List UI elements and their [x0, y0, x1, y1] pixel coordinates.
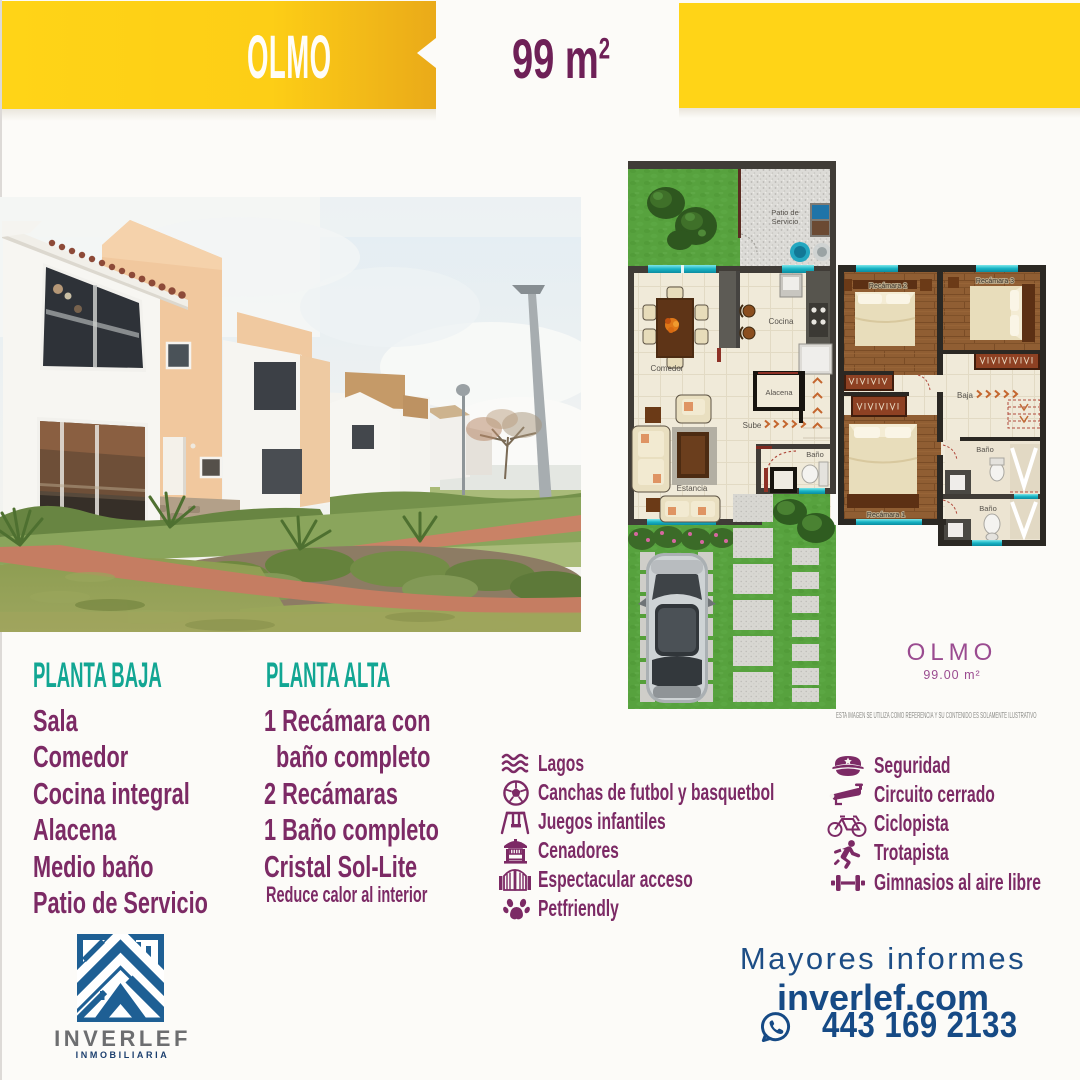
- svg-text:Recámara 1: Recámara 1: [867, 512, 905, 519]
- svg-text:Recámara 2: Recámara 2: [869, 283, 907, 290]
- svg-text:Servicio: Servicio: [772, 217, 799, 226]
- svg-text:Baño: Baño: [806, 450, 824, 459]
- svg-text:Baja: Baja: [957, 391, 974, 400]
- svg-text:Patio de: Patio de: [771, 208, 799, 217]
- svg-text:Recámara 3: Recámara 3: [976, 278, 1014, 285]
- svg-text:Sube: Sube: [743, 421, 762, 430]
- svg-text:Baño: Baño: [979, 504, 997, 513]
- svg-text:Comedor: Comedor: [651, 364, 684, 373]
- svg-text:Baño: Baño: [976, 445, 994, 454]
- svg-text:Alacena: Alacena: [765, 388, 793, 397]
- svg-text:Estancia: Estancia: [677, 484, 708, 493]
- svg-text:Cocina: Cocina: [769, 317, 794, 326]
